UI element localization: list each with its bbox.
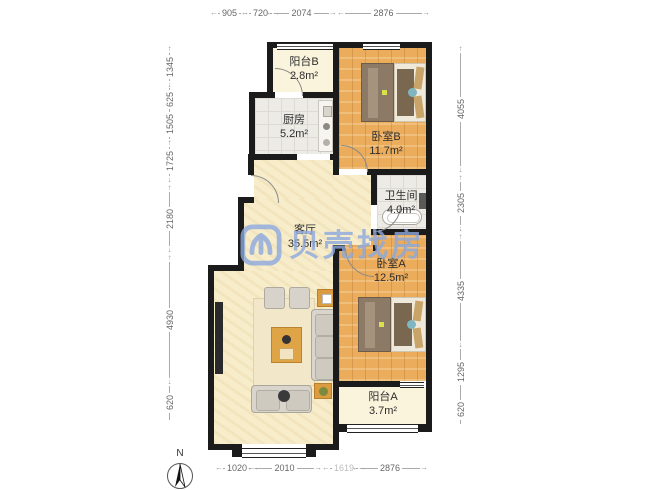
dim-bottom-2: ←2010→ bbox=[247, 462, 322, 474]
dim-arrow: ← bbox=[247, 464, 255, 472]
dim-right-5: 620 bbox=[454, 396, 467, 424]
window-balcony-a bbox=[347, 424, 418, 433]
burner-icon bbox=[323, 123, 330, 130]
dim-arrow: → bbox=[329, 9, 337, 17]
dim-top-3: ←2074→ bbox=[266, 7, 337, 19]
bay-window-living bbox=[242, 448, 306, 458]
dim-value: 1020 bbox=[225, 463, 249, 473]
dim-value: 2876 bbox=[378, 463, 402, 473]
round-stool bbox=[278, 390, 290, 402]
dim-arrow: ↑ bbox=[168, 139, 172, 147]
decor-cube bbox=[322, 294, 332, 304]
wall-living-left-c bbox=[208, 265, 214, 450]
wardrobe-panel bbox=[365, 302, 375, 348]
pillow bbox=[414, 67, 425, 90]
wall-right bbox=[426, 42, 432, 432]
dim-arrow: → bbox=[314, 464, 322, 472]
wardrobe-bedroom-b bbox=[361, 63, 394, 122]
dim-left-1: ↑1345↓ bbox=[163, 45, 176, 88]
dim-arrow: ← bbox=[215, 464, 223, 472]
wall-kitchen-bottom-a bbox=[249, 154, 297, 160]
wardrobe-bedroom-a bbox=[358, 297, 391, 352]
window-bedroom-b bbox=[363, 43, 400, 50]
dim-arrow: → bbox=[422, 9, 430, 17]
kitchen-counter bbox=[318, 100, 333, 152]
room-name: 卧室B bbox=[369, 130, 402, 144]
sink-icon bbox=[323, 106, 332, 117]
dim-bottom-4: ←2876→ bbox=[352, 462, 428, 474]
dim-right-4: 1295 bbox=[454, 349, 467, 396]
room-area: 4.0m² bbox=[385, 203, 418, 217]
dim-value: 620 bbox=[165, 393, 175, 412]
dim-arrow: ↑ bbox=[459, 233, 463, 241]
wall-bottom-a bbox=[208, 444, 232, 450]
dim-right-3: ↑4335↓ bbox=[454, 233, 467, 349]
round-cushion bbox=[408, 88, 417, 97]
room-label-bathroom: 卫生间 4.0m² bbox=[385, 189, 418, 218]
room-label-bedroom-a: 卧室A 12.5m² bbox=[374, 257, 408, 286]
dim-value: 4335 bbox=[456, 279, 466, 303]
tv-unit bbox=[215, 302, 223, 374]
dim-arrow: ↑ bbox=[459, 45, 463, 53]
dim-top-4: ←2876→ bbox=[337, 7, 430, 19]
room-area: 11.7m² bbox=[369, 144, 402, 158]
dim-arrow: ← bbox=[322, 464, 330, 472]
dim-left-2: 625 bbox=[163, 88, 176, 110]
room-label-kitchen: 厨房 5.2m² bbox=[280, 113, 308, 142]
bed-bedroom-b bbox=[394, 63, 426, 122]
room-label-bedroom-b: 卧室B 11.7m² bbox=[369, 130, 402, 159]
dim-value: 4055 bbox=[456, 97, 466, 121]
dim-top-2: ←720→ bbox=[241, 7, 266, 19]
dim-value: 2180 bbox=[165, 207, 175, 231]
kettle bbox=[282, 335, 291, 344]
hallway-floor bbox=[333, 175, 371, 245]
compass-north-label: N bbox=[162, 449, 198, 459]
bay-post-left bbox=[232, 444, 242, 457]
room-name: 卧室A bbox=[374, 257, 408, 271]
balcony-a-post-right bbox=[418, 424, 426, 432]
dim-value: 2074 bbox=[289, 8, 313, 18]
pillow bbox=[413, 301, 424, 322]
wall-kitchen-left bbox=[249, 92, 255, 160]
plant bbox=[319, 387, 328, 396]
dim-value: 1345 bbox=[165, 55, 175, 79]
room-area: 35.5m² bbox=[288, 237, 322, 251]
dim-arrow: ← bbox=[337, 9, 345, 17]
sliding-door-balcony-a bbox=[400, 382, 424, 388]
dim-bottom-1: ←1020→ bbox=[215, 462, 247, 474]
window-balcony-b bbox=[277, 43, 333, 50]
wall-balcony-b-left bbox=[267, 42, 273, 98]
dim-left-6: ↑4930↓ bbox=[163, 254, 176, 386]
room-label-balcony-a: 阳台A 3.7m² bbox=[368, 390, 397, 419]
room-label-living: 客厅 35.5m² bbox=[288, 223, 322, 252]
floor-plan: 阳台B 2.8m² 厨房 5.2m² 卧室B 11.7m² 卫生间 4.0m² … bbox=[0, 0, 653, 490]
armchair bbox=[289, 287, 310, 309]
room-name: 阳台A bbox=[368, 390, 397, 404]
dim-arrow: ↓ bbox=[459, 341, 463, 349]
wall-living-left-a bbox=[248, 154, 254, 175]
coffee-table bbox=[271, 327, 302, 363]
room-area: 3.7m² bbox=[368, 404, 397, 418]
dim-value: 905 bbox=[220, 8, 239, 18]
tv-dot bbox=[379, 322, 384, 327]
wardrobe-panel bbox=[368, 68, 378, 118]
room-name: 阳台B bbox=[289, 55, 318, 69]
dim-value: 1505 bbox=[165, 112, 175, 136]
sofa-cushion bbox=[256, 390, 280, 411]
burner-icon bbox=[323, 139, 330, 146]
wall-balcony-a-top bbox=[339, 381, 400, 387]
room-name: 厨房 bbox=[280, 113, 308, 127]
tv-dot bbox=[382, 90, 387, 95]
dim-left-5: ↑2180↓ bbox=[163, 184, 176, 254]
armchair bbox=[264, 287, 285, 309]
bay-post-right bbox=[306, 444, 316, 457]
dim-arrow: ↑ bbox=[459, 174, 463, 182]
dim-right-1: ↑4055↓ bbox=[454, 45, 467, 174]
dim-value: 620 bbox=[456, 400, 466, 419]
wall-main-lower bbox=[333, 245, 339, 450]
room-name: 卫生间 bbox=[385, 189, 418, 203]
dim-value: 2305 bbox=[456, 191, 466, 215]
dim-arrow: ↑ bbox=[168, 254, 172, 262]
dim-arrow: ↓ bbox=[168, 378, 172, 386]
tray bbox=[279, 348, 294, 360]
dim-left-3: 1505 bbox=[163, 110, 176, 139]
side-table bbox=[314, 383, 332, 399]
sofa-cushion bbox=[315, 358, 335, 380]
dim-left-4: ↑1725↓ bbox=[163, 139, 176, 184]
dim-arrow: ← bbox=[210, 9, 218, 17]
dim-value: 1295 bbox=[456, 360, 466, 384]
dim-bottom-3: ←1619→ bbox=[322, 462, 352, 474]
dim-value: 2010 bbox=[272, 463, 296, 473]
room-area: 12.5m² bbox=[374, 271, 408, 285]
pillow bbox=[413, 328, 424, 349]
room-name: 客厅 bbox=[288, 223, 322, 237]
washer bbox=[419, 193, 426, 209]
dim-right-2: ↑2305↓ bbox=[454, 174, 467, 233]
compass-needle-icon bbox=[165, 460, 195, 490]
bed-bedroom-a bbox=[391, 297, 426, 352]
side-table bbox=[317, 289, 334, 307]
dim-value: 625 bbox=[165, 90, 175, 109]
dim-value: 4930 bbox=[165, 308, 175, 332]
pillow bbox=[414, 96, 425, 119]
wall-bathroom-left bbox=[371, 169, 377, 205]
room-area: 2.8m² bbox=[289, 69, 318, 83]
round-cushion bbox=[407, 320, 416, 329]
sofa-cushion bbox=[315, 314, 335, 336]
dim-arrow: ↑ bbox=[168, 184, 172, 192]
dim-left-7: 620 bbox=[163, 386, 176, 420]
wall-bedroom-a-top-a bbox=[333, 245, 345, 251]
balcony-a-post-left bbox=[339, 424, 347, 432]
wall-main-upper bbox=[333, 42, 339, 175]
dim-arrow: ← bbox=[241, 9, 249, 17]
room-label-balcony-b: 阳台B 2.8m² bbox=[289, 55, 318, 84]
dim-top-1: ←905→ bbox=[210, 7, 241, 19]
compass: N bbox=[162, 449, 198, 490]
dim-arrow: → bbox=[420, 464, 428, 472]
dim-value: 1725 bbox=[165, 149, 175, 173]
sofa-cushion bbox=[315, 336, 335, 358]
room-area: 5.2m² bbox=[280, 127, 308, 141]
dim-arrow: ← bbox=[266, 9, 274, 17]
dim-arrow: ← bbox=[352, 464, 360, 472]
dim-arrow: ↑ bbox=[168, 45, 172, 53]
dim-value: 2876 bbox=[371, 8, 395, 18]
wall-living-left-b bbox=[238, 197, 244, 271]
